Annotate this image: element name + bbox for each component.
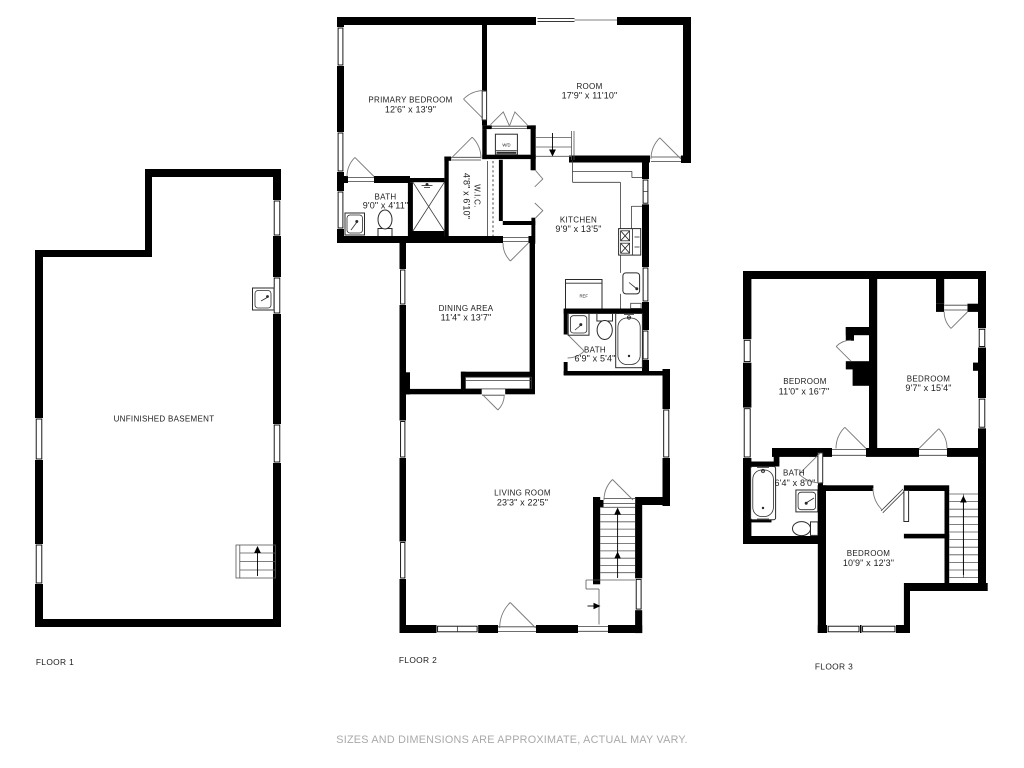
svg-text:FLOOR 2: FLOOR 2 bbox=[399, 655, 437, 665]
svg-text:SIZES AND DIMENSIONS ARE APPRO: SIZES AND DIMENSIONS ARE APPROXIMATE, AC… bbox=[336, 734, 688, 746]
svg-text:6'4" x 8'0": 6'4" x 8'0" bbox=[775, 478, 816, 488]
svg-text:23'3" x 22'5": 23'3" x 22'5" bbox=[497, 498, 548, 508]
svg-text:9'0" x 4'11": 9'0" x 4'11" bbox=[363, 201, 409, 211]
svg-text:FLOOR 1: FLOOR 1 bbox=[36, 657, 74, 667]
svg-text:W.I.C.: W.I.C. bbox=[473, 184, 482, 208]
svg-text:11'0" x 16'7": 11'0" x 16'7" bbox=[779, 387, 830, 397]
svg-text:W/D: W/D bbox=[502, 143, 510, 148]
svg-text:REF: REF bbox=[580, 294, 589, 299]
svg-text:UNFINISHED BASEMENT: UNFINISHED BASEMENT bbox=[114, 415, 215, 424]
svg-text:9'9" x 13'5": 9'9" x 13'5" bbox=[555, 224, 601, 234]
svg-text:PRIMARY BEDROOM: PRIMARY BEDROOM bbox=[368, 96, 452, 105]
svg-text:10'9" x 12'3": 10'9" x 12'3" bbox=[843, 558, 894, 568]
svg-text:11'4" x 13'7": 11'4" x 13'7" bbox=[441, 313, 492, 323]
svg-text:4'8" x 6'10": 4'8" x 6'10" bbox=[462, 173, 472, 219]
svg-text:FLOOR 3: FLOOR 3 bbox=[815, 662, 853, 672]
svg-text:BATH: BATH bbox=[783, 469, 805, 478]
svg-text:12'6" x 13'9": 12'6" x 13'9" bbox=[385, 105, 436, 115]
svg-text:9'7" x 15'4": 9'7" x 15'4" bbox=[905, 383, 951, 393]
svg-text:BEDROOM: BEDROOM bbox=[783, 377, 826, 386]
svg-text:6'9" x 5'4": 6'9" x 5'4" bbox=[575, 354, 616, 364]
svg-text:LIVING ROOM: LIVING ROOM bbox=[494, 489, 551, 498]
svg-text:17'9" x 11'10": 17'9" x 11'10" bbox=[562, 91, 618, 101]
svg-text:BEDROOM: BEDROOM bbox=[847, 549, 890, 558]
